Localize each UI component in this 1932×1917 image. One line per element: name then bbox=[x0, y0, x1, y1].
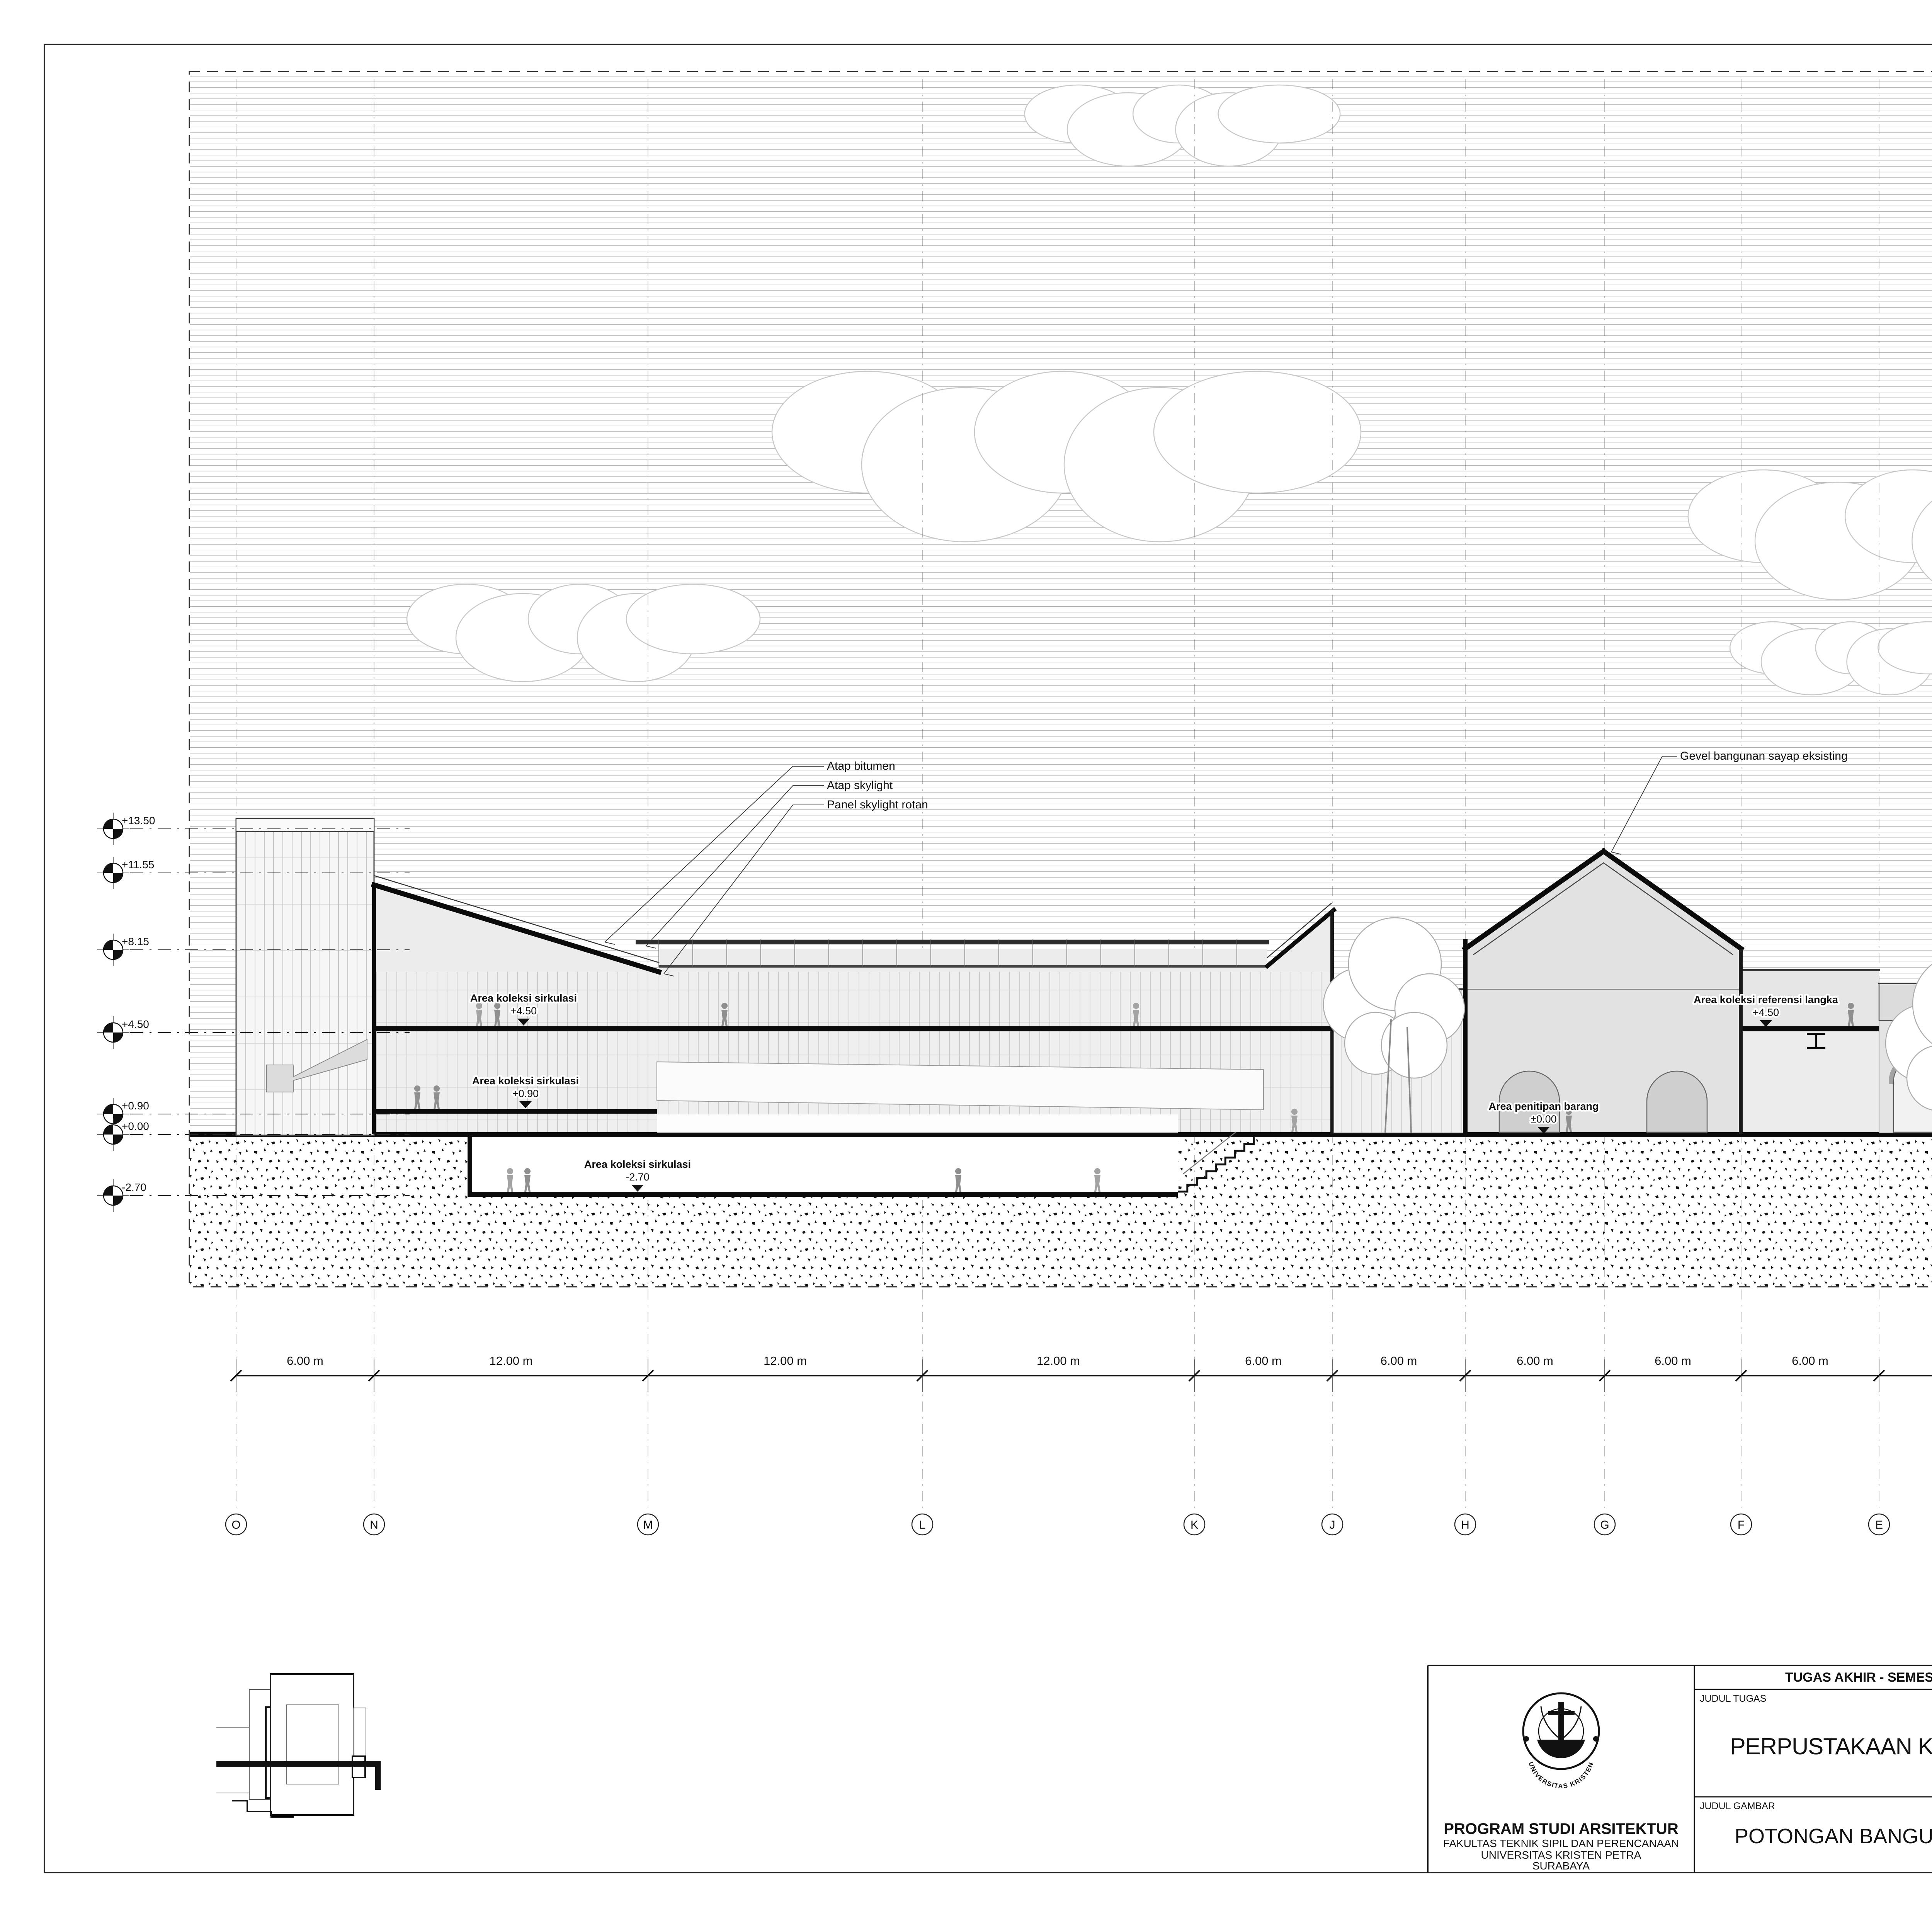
elevation-label: +8.15 bbox=[122, 936, 149, 947]
room-level: +0.90 bbox=[512, 1088, 539, 1099]
label-judul-tugas: JUDUL TUGAS bbox=[1700, 1693, 1766, 1704]
grid-bubble: J bbox=[1322, 1514, 1343, 1535]
elevation-label: +0.90 bbox=[122, 1100, 149, 1112]
wing-f-e bbox=[1739, 949, 1879, 1134]
dimension-label: 12.00 m bbox=[764, 1354, 807, 1368]
institution-line3: UNIVERSITAS KRISTEN PETRA bbox=[1481, 1849, 1641, 1861]
grid-bubble: N bbox=[364, 1514, 384, 1535]
grid-bubble: H bbox=[1455, 1514, 1476, 1535]
grid-letter: N bbox=[370, 1519, 378, 1531]
room-level: +4.50 bbox=[510, 1005, 537, 1017]
grid-letter: L bbox=[919, 1519, 926, 1531]
institution-line1: PROGRAM STUDI ARSITEKTUR bbox=[1444, 1820, 1679, 1837]
room-level: -2.70 bbox=[626, 1171, 650, 1183]
grid-letter: M bbox=[643, 1519, 653, 1531]
grid-bubble: O bbox=[226, 1514, 247, 1535]
grid-bubble: E bbox=[1869, 1514, 1889, 1535]
institution-line2: FAKULTAS TEKNIK SIPIL DAN PERENCANAAN bbox=[1443, 1837, 1679, 1849]
dimension-label: 6.00 m bbox=[287, 1354, 323, 1368]
grid-letter: F bbox=[1738, 1519, 1745, 1531]
annotation-text: Panel skylight rotan bbox=[827, 798, 928, 811]
elevation-label: +0.00 bbox=[122, 1120, 149, 1132]
grid-letter: J bbox=[1330, 1519, 1335, 1531]
dimension-label: 12.00 m bbox=[489, 1354, 532, 1368]
room-name: Area penitipan barang bbox=[1488, 1101, 1599, 1112]
annotation-text: Gevel bangunan sayap eksisting bbox=[1680, 750, 1848, 762]
left-tower bbox=[236, 818, 374, 1135]
room-level: ±0.00 bbox=[1531, 1113, 1556, 1125]
grid-letter: H bbox=[1461, 1519, 1469, 1531]
grid-bubble: F bbox=[1731, 1514, 1752, 1535]
room-name: Area koleksi sirkulasi bbox=[470, 992, 577, 1004]
room-name: Area koleksi sirkulasi bbox=[472, 1075, 579, 1087]
room-name: Area koleksi sirkulasi bbox=[584, 1158, 691, 1170]
elevation-label: +11.55 bbox=[122, 859, 154, 871]
titleblock-header: TUGAS AKHIR - SEMESTER GENAP 2023/2024 bbox=[1785, 1670, 1932, 1685]
grid-letter: K bbox=[1190, 1519, 1198, 1531]
grid-bubble: M bbox=[638, 1514, 658, 1535]
person-silhouette bbox=[1291, 1109, 1298, 1115]
annotation-text: Atap bitumen bbox=[827, 760, 895, 772]
person-silhouette bbox=[721, 1003, 728, 1009]
section-drawing-svg: +13.50+11.55+8.15+4.50+0.90+0.00-2.70 Ar… bbox=[0, 0, 1932, 1917]
room-level: +4.50 bbox=[1753, 1007, 1779, 1018]
elevation-label: +4.50 bbox=[122, 1018, 149, 1030]
elevation-label: +13.50 bbox=[122, 815, 155, 827]
grid-bubble: G bbox=[1594, 1514, 1615, 1535]
grid-letter: G bbox=[1600, 1519, 1609, 1531]
dimension-label: 6.00 m bbox=[1245, 1354, 1282, 1368]
person-silhouette bbox=[524, 1168, 531, 1174]
grid-bubble: L bbox=[912, 1514, 933, 1535]
cloud bbox=[1218, 85, 1340, 143]
ground bbox=[189, 1120, 1932, 1286]
drawing-sheet: +13.50+11.55+8.15+4.50+0.90+0.00-2.70 Ar… bbox=[0, 0, 1932, 1917]
judul-tugas-value: PERPUSTAKAAN KOTA DI SURABAYA bbox=[1730, 1733, 1932, 1759]
grid-bubble: K bbox=[1184, 1514, 1205, 1535]
elevation-label: -2.70 bbox=[122, 1181, 146, 1193]
dimension-label: 6.00 m bbox=[1792, 1354, 1828, 1368]
institution-line4: SURABAYA bbox=[1532, 1860, 1590, 1872]
cloud bbox=[626, 584, 760, 654]
dimension-label: 6.00 m bbox=[1655, 1354, 1691, 1368]
dimension-label: 6.00 m bbox=[1517, 1354, 1553, 1368]
person-silhouette bbox=[507, 1168, 513, 1174]
label-judul-gambar: JUDUL GAMBAR bbox=[1700, 1801, 1775, 1812]
person-silhouette bbox=[1848, 1003, 1854, 1009]
cloud bbox=[1154, 371, 1361, 493]
person-silhouette bbox=[414, 1085, 420, 1092]
grid-letter: E bbox=[1875, 1519, 1883, 1531]
dimension-label: 6.00 m bbox=[1381, 1354, 1417, 1368]
judul-gambar-value: POTONGAN BANGUNAN B-B bbox=[1735, 1825, 1932, 1848]
annotation-text: Atap skylight bbox=[827, 779, 893, 792]
person-silhouette bbox=[955, 1168, 961, 1174]
person-silhouette bbox=[1133, 1003, 1139, 1009]
person-silhouette bbox=[1094, 1168, 1100, 1174]
room-name: Area koleksi referensi langka bbox=[1694, 994, 1838, 1005]
person-silhouette bbox=[434, 1085, 440, 1092]
grid-letter: O bbox=[231, 1519, 240, 1531]
dimension-label: 12.00 m bbox=[1037, 1354, 1080, 1368]
